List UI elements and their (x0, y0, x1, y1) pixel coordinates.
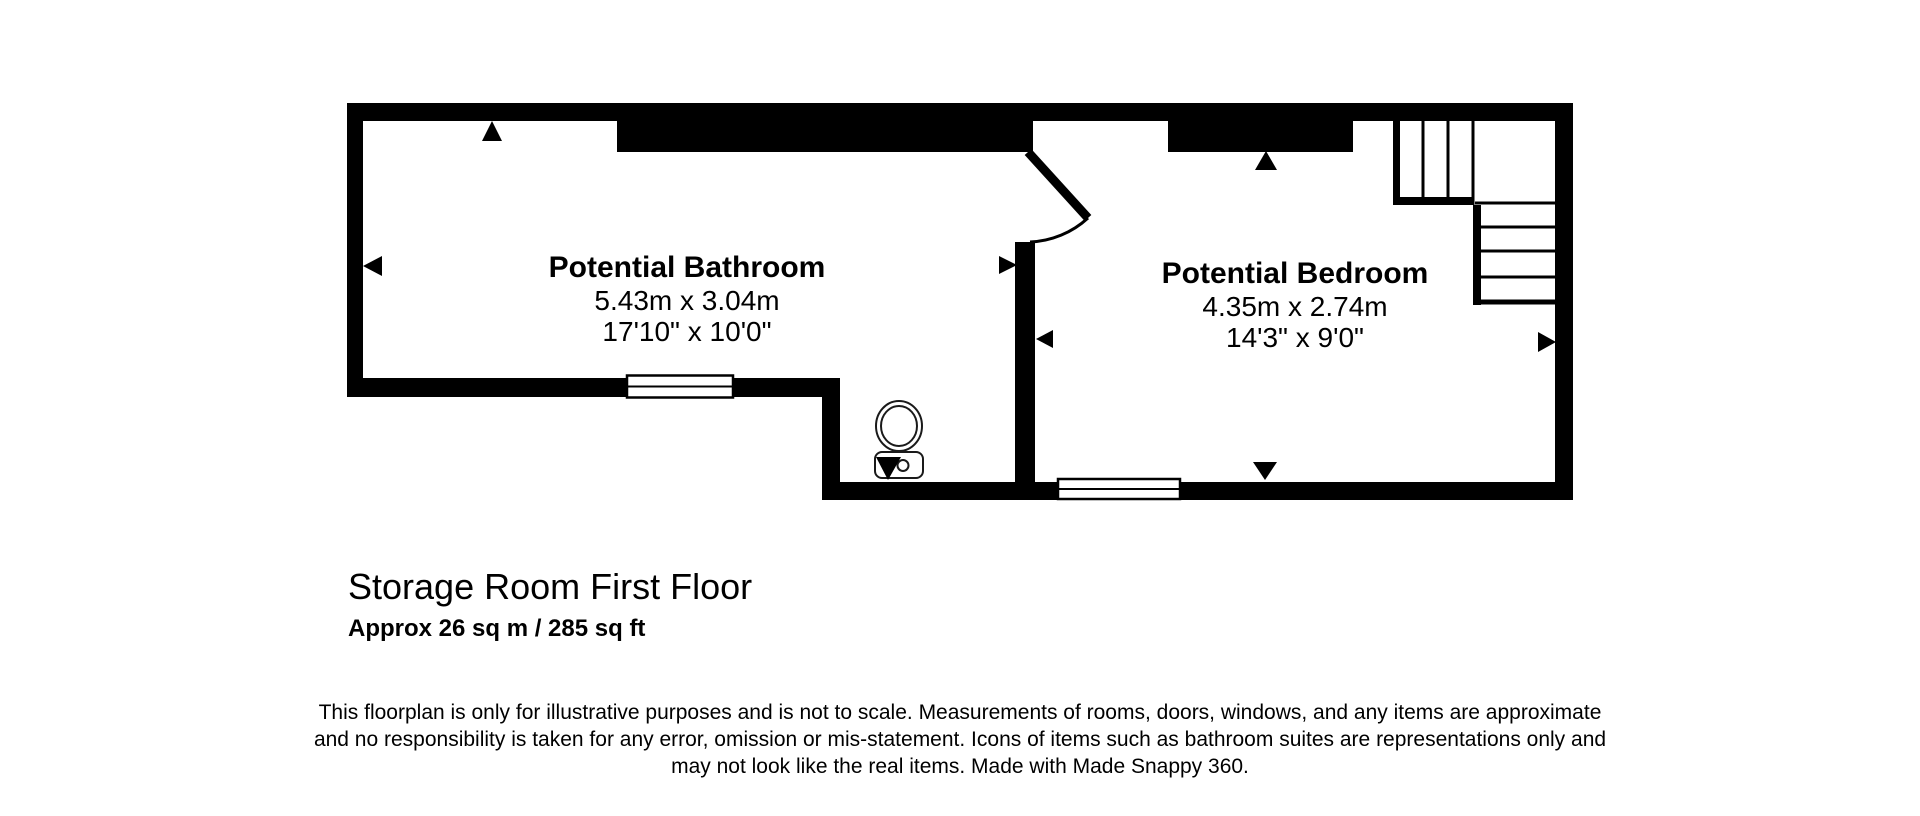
disclaimer-text: This floorplan is only for illustrative … (0, 699, 1920, 780)
room-dim-imperial: 14'3" x 9'0" (1162, 322, 1429, 353)
wall-segment (1393, 121, 1400, 205)
bathroom-window (627, 376, 733, 398)
disclaimer-line: may not look like the real items. Made w… (0, 753, 1920, 780)
room-name: Potential Bedroom (1162, 257, 1429, 291)
bedroom-window (1058, 479, 1180, 499)
toilet-bowl-inner (881, 406, 917, 446)
door-leaf (1028, 152, 1088, 218)
wall-segment (733, 378, 840, 397)
room-dim-metric: 5.43m x 3.04m (549, 285, 826, 316)
page-title: Storage Room First Floor (348, 566, 752, 608)
wall-segment (1180, 482, 1573, 500)
camera-viewpoint-icon (1255, 151, 1277, 170)
toilet-flush-button (898, 460, 909, 471)
wall-segment (1555, 103, 1573, 500)
staircase (1423, 121, 1555, 302)
camera-viewpoint-icon (1253, 462, 1277, 480)
room-label-bedroom: Potential Bedroom 4.35m x 2.74m 14'3" x … (1162, 257, 1429, 353)
wall-segment (347, 103, 1573, 121)
room-dim-metric: 4.35m x 2.74m (1162, 291, 1429, 322)
area-summary: Approx 26 sq m / 285 sq ft (348, 615, 645, 643)
camera-viewpoint-icon (1036, 330, 1053, 348)
camera-viewpoint-icon (363, 256, 382, 276)
wall-segment (617, 121, 1033, 152)
disclaimer-line: and no responsibility is taken for any e… (0, 726, 1920, 753)
camera-viewpoint-icon (999, 256, 1017, 274)
camera-viewpoint-icon (482, 121, 502, 141)
door-swing (1028, 152, 1088, 242)
camera-viewpoint-icon (1538, 332, 1556, 352)
floorplan-drawing (0, 0, 1920, 816)
disclaimer-line: This floorplan is only for illustrative … (0, 699, 1920, 726)
room-dim-imperial: 17'10" x 10'0" (549, 316, 826, 347)
room-label-bathroom: Potential Bathroom 5.43m x 3.04m 17'10" … (549, 251, 826, 347)
room-name: Potential Bathroom (549, 251, 826, 285)
wall-segment (1473, 205, 1481, 305)
wall-segment (1015, 242, 1035, 500)
wall-segment (1168, 121, 1353, 152)
door-arc (1030, 218, 1088, 242)
floorplan-page: Potential Bathroom 5.43m x 3.04m 17'10" … (0, 0, 1920, 816)
wall-segment (347, 103, 363, 397)
wall-segment (347, 378, 627, 397)
wall-segment (1393, 197, 1473, 205)
